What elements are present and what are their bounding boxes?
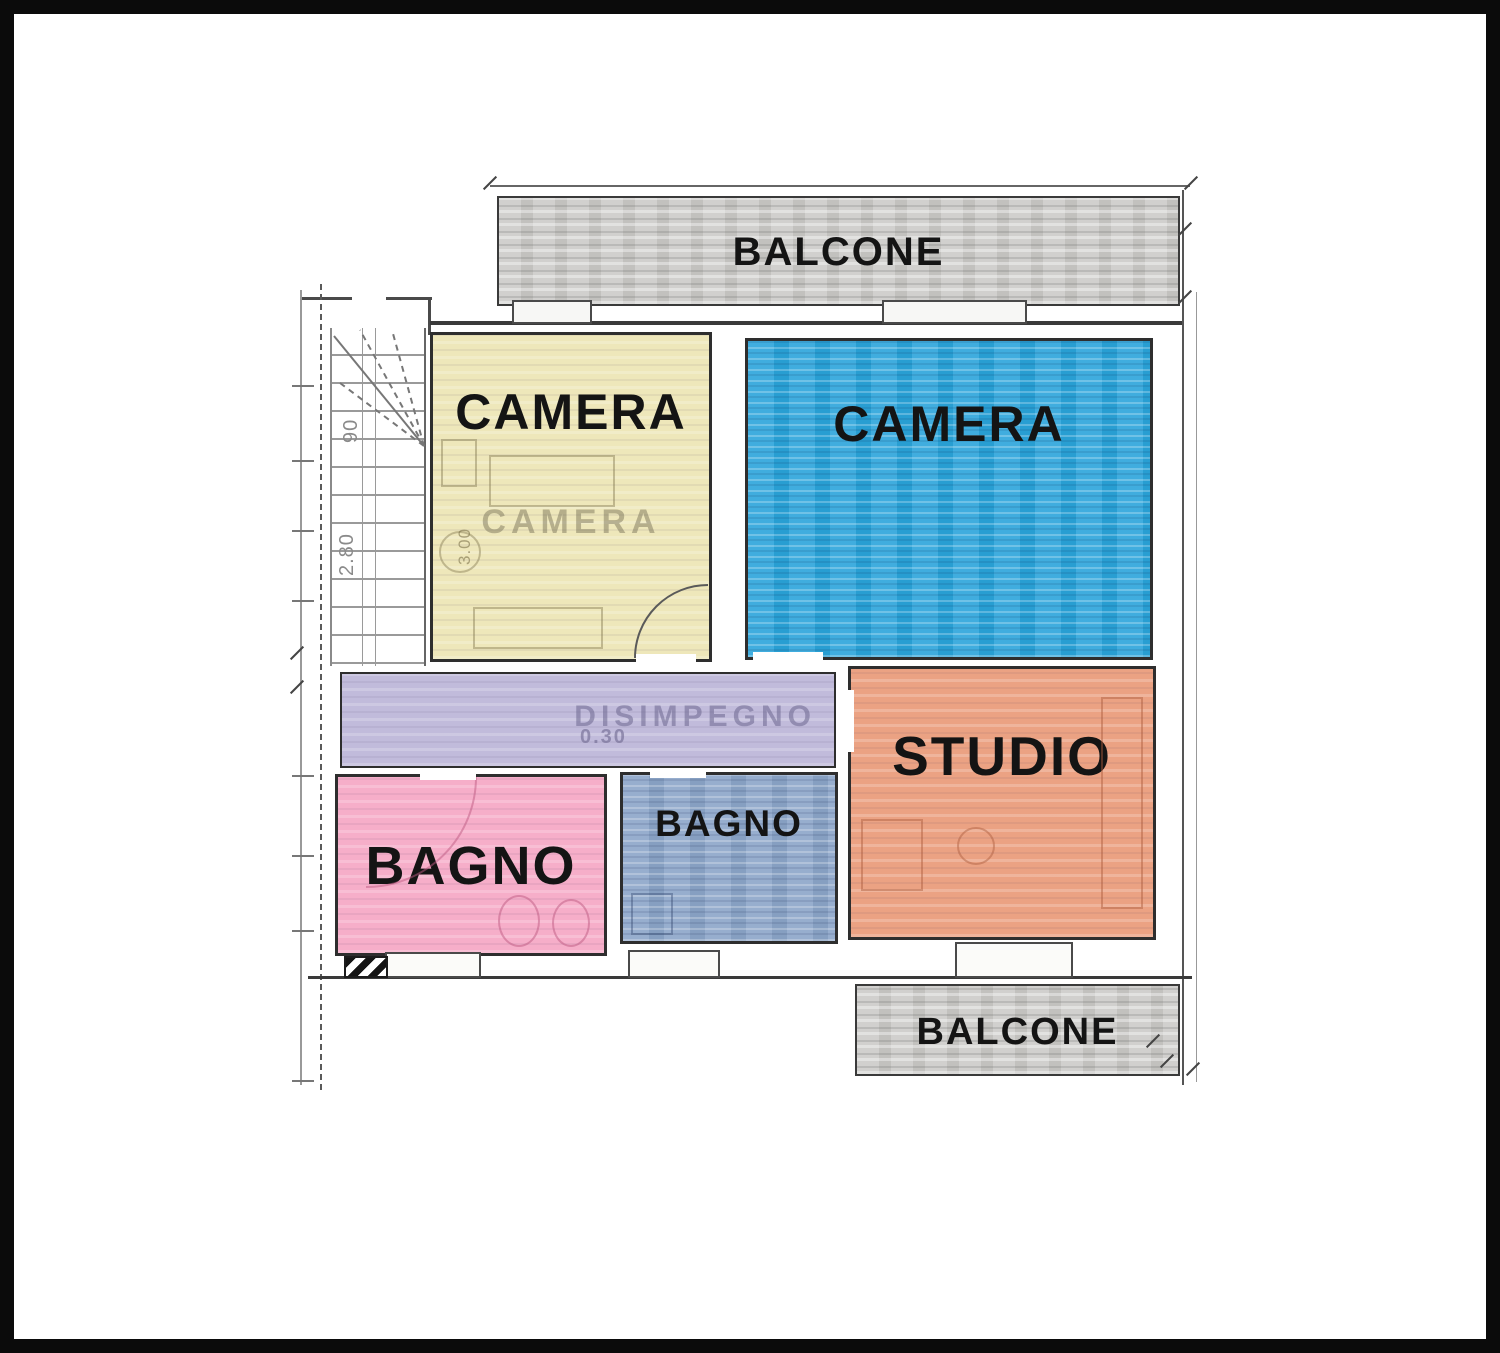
tick-slash-icon <box>1178 290 1192 304</box>
camera-blue-label: CAMERA <box>748 399 1150 449</box>
desk-outline <box>861 819 923 891</box>
wall-top-left-b <box>386 297 432 300</box>
floorplan-canvas: BALCONE <box>0 0 1500 1353</box>
dresser-outline <box>473 607 603 649</box>
tick-slash-icon <box>1186 1062 1200 1076</box>
bed-outline <box>489 455 615 507</box>
door-arc <box>635 585 710 660</box>
camera-yellow-label: CAMERA <box>433 387 709 437</box>
tick-mark <box>292 530 314 532</box>
room-studio: STUDIO <box>848 666 1156 940</box>
door-gap-studio <box>842 690 854 752</box>
tick-mark <box>292 855 314 857</box>
room-bagno-pink: BAGNO <box>335 774 607 956</box>
room-bagno-slate: BAGNO <box>620 772 838 944</box>
room-camera-blue: CAMERA <box>745 338 1153 660</box>
tick-mark <box>292 600 314 602</box>
dimension-tick-icon <box>1184 176 1198 190</box>
wall-stair-connector <box>428 297 431 335</box>
window-sill-bagno-pink <box>385 952 481 978</box>
reference-line-right <box>1182 190 1184 1085</box>
stair-height-dim: 2.80 <box>336 533 359 576</box>
room-disimpegno: DISIMPEGNO 0.30 <box>340 672 836 768</box>
door-gap-camera-blue <box>753 652 823 664</box>
door-gap-bagno-pink <box>420 770 476 780</box>
door-gap-bagno-slate <box>650 768 706 778</box>
floorplan: BALCONE <box>0 0 1500 1353</box>
dimension-line-top <box>490 185 1190 187</box>
pillar-hatch-icon <box>344 956 388 978</box>
tick-mark <box>292 775 314 777</box>
window-camera-blue <box>882 300 1027 324</box>
dimension-tick-icon <box>483 176 497 190</box>
tick-slash-icon <box>1178 222 1192 236</box>
staircase: 90 2.80 <box>330 328 426 666</box>
bidet-outline <box>552 899 590 947</box>
tick-mark <box>292 385 314 387</box>
toilet-outline <box>498 895 540 947</box>
balcony-bottom-label: BALCONE <box>857 1013 1178 1051</box>
balcony-top: BALCONE <box>497 196 1180 306</box>
tick-mark <box>292 930 314 932</box>
balcony-bottom: BALCONE <box>855 984 1180 1076</box>
window-sill-studio <box>955 942 1073 978</box>
shelf-outline <box>1101 697 1143 909</box>
bagno-slate-label: BAGNO <box>623 805 835 842</box>
disimpegno-dim: 0.30 <box>580 726 627 749</box>
stair-width-dim: 90 <box>340 419 363 443</box>
reference-line-left <box>300 290 302 1085</box>
window-sill-bagno-slate <box>628 950 720 978</box>
shower-outline <box>631 893 673 935</box>
wardrobe-outline <box>441 439 477 487</box>
stool-outline <box>957 827 995 865</box>
tick-mark <box>292 460 314 462</box>
door-arc <box>366 777 476 887</box>
balcony-top-label: BALCONE <box>499 232 1178 272</box>
wall-top-left-a <box>300 297 352 300</box>
chair-outline <box>439 531 481 573</box>
room-camera-yellow: CAMERA CAMERA 3.00 <box>430 332 712 662</box>
reference-line-right-outer <box>1196 292 1197 1082</box>
section-line-left <box>320 284 322 1090</box>
tick-mark <box>292 1080 314 1082</box>
window-camera-yellow <box>512 300 592 324</box>
door-gap-camera-yellow <box>636 654 696 666</box>
